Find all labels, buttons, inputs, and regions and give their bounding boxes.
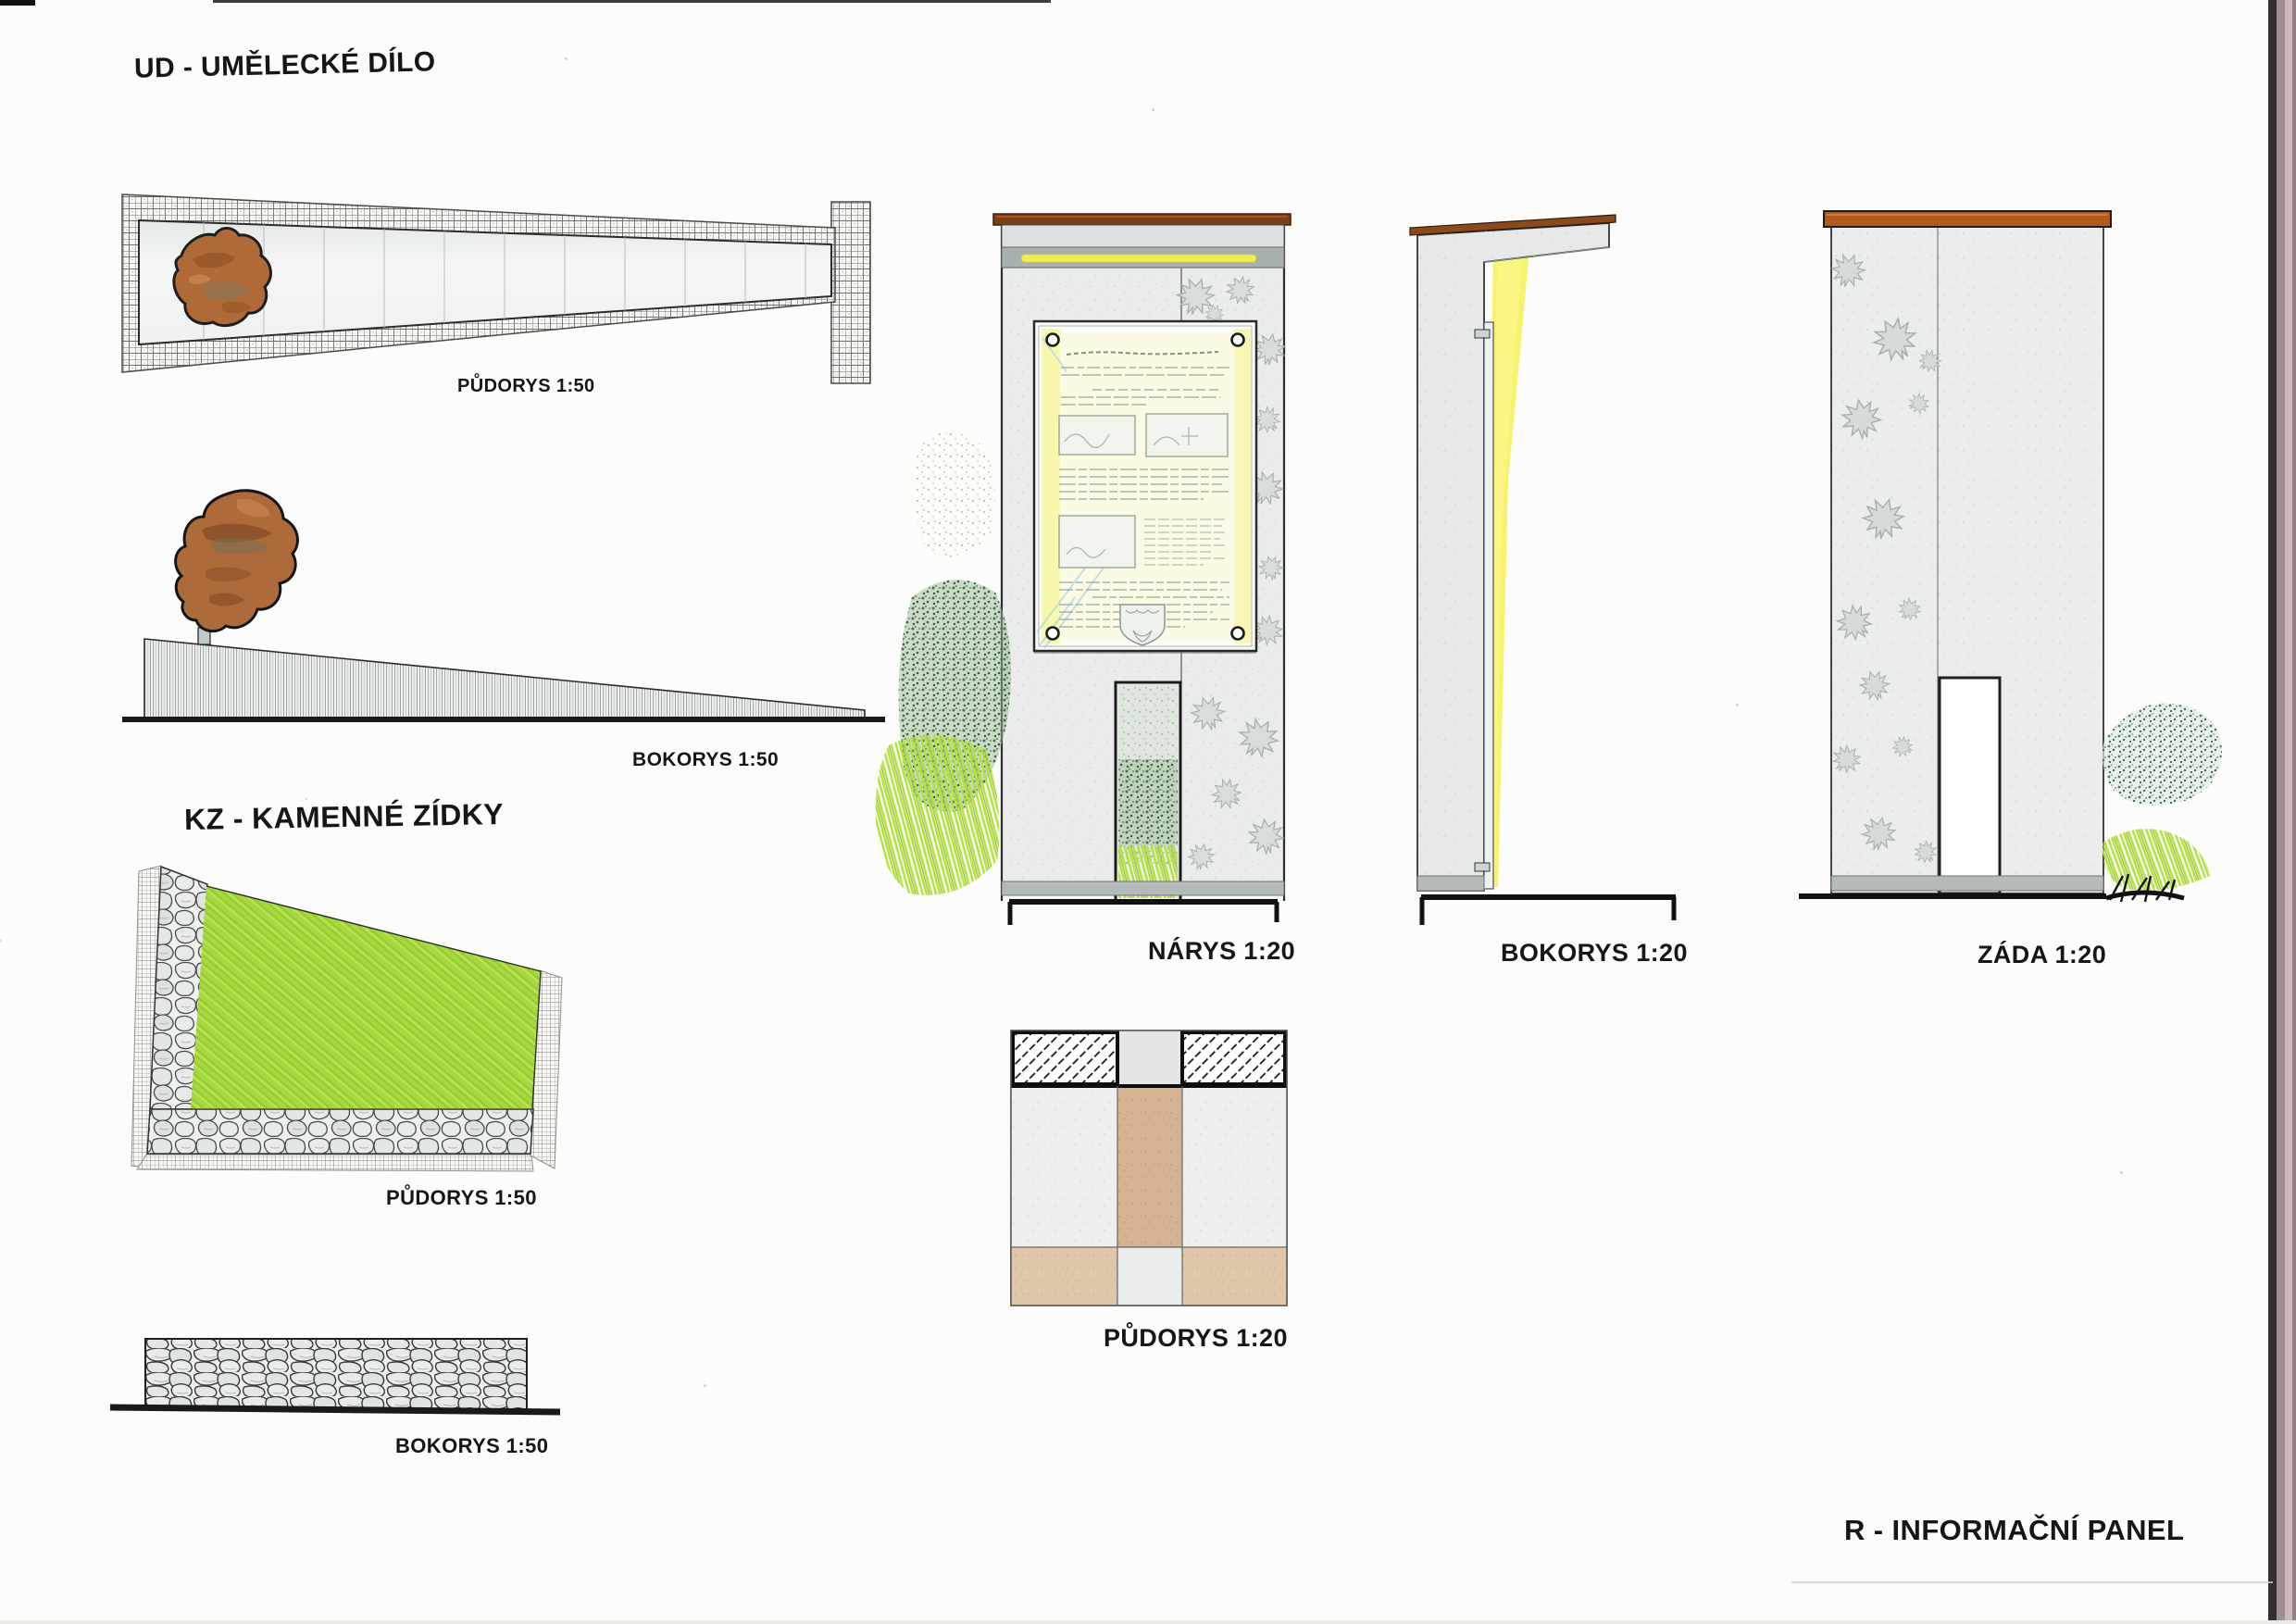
panel-plan-label: PŮDORYS 1:20 [1104, 1326, 1288, 1351]
rock-sculpture [176, 491, 298, 631]
heading-ud: UD - UMĚLECKÉ DÍLO [134, 48, 436, 82]
panel-header-band [1002, 225, 1284, 268]
heading-kz: KZ - KAMENNÉ ZÍDKY [184, 799, 504, 834]
paper-speck [704, 1384, 706, 1387]
wood-core-column [1117, 1086, 1182, 1247]
bottom-tan-left [1011, 1247, 1117, 1305]
kz-side-label: BOKORYS 1:50 [395, 1436, 548, 1456]
panel-back-label: ZÁDA 1:20 [1978, 943, 2106, 968]
scan-smudge-line [1791, 1581, 2273, 1583]
ud-plan-label: PŮDORYS 1:50 [457, 377, 595, 395]
scan-edge-right-light [2285, 0, 2292, 1624]
panel-front-drawing [870, 208, 1305, 949]
ground-line [110, 1407, 560, 1412]
panel-plan-drawing [1000, 1018, 1305, 1329]
door-opening [1940, 678, 2000, 893]
panel-base [1002, 881, 1284, 925]
glass-info-display [1034, 321, 1256, 653]
column-base [1417, 876, 1676, 925]
scan-edge-right-mid [2277, 0, 2285, 1624]
paper-speck [2120, 1171, 2123, 1174]
scan-edge-right-dark [2268, 0, 2277, 1624]
ramp-wedge [144, 639, 865, 719]
heading-r-panel: R - INFORMAČNÍ PANEL [1844, 1516, 2184, 1544]
ud-side-label: BOKORYS 1:50 [632, 750, 779, 769]
paper-speck [565, 57, 568, 60]
panel-side-drawing [1393, 204, 1708, 954]
light-beam [1490, 239, 1530, 887]
panel-top-cap [1824, 211, 2111, 227]
stone-wall-elevation [145, 1339, 527, 1409]
grass-area [191, 886, 541, 1108]
rock-plan [174, 229, 271, 326]
paper-speck [1736, 704, 1739, 706]
panel-front-label: NÁRYS 1:20 [1148, 939, 1295, 964]
scan-edge-top-left [0, 0, 35, 6]
panel-back-drawing [1791, 204, 2254, 944]
panel-top-cap [993, 214, 1291, 225]
panel-side-label: BOKORYS 1:20 [1501, 941, 1688, 966]
led-light-strip [1021, 255, 1256, 262]
scan-edge-bottom [0, 1620, 2296, 1624]
left-vegetation [876, 432, 1011, 895]
paper-speck [1152, 108, 1154, 111]
plan-cross-section [1011, 1031, 1287, 1305]
right-shrub [2103, 704, 2222, 903]
architectural-sketch-sheet: UD - UMĚLECKÉ DÍLO PŮDORYS 1:50 BOKORYS … [0, 0, 2296, 1624]
kz-plan-drawing [130, 856, 593, 1194]
paper-speck [0, 940, 2, 942]
bottom-tan-right [1182, 1247, 1287, 1305]
scan-edge-right-outer [2292, 0, 2296, 1624]
kz-plan-label: PŮDORYS 1:50 [386, 1188, 537, 1208]
ud-side-drawing [102, 481, 898, 759]
scan-edge-top [213, 0, 1051, 3]
door-opening [1116, 682, 1180, 901]
